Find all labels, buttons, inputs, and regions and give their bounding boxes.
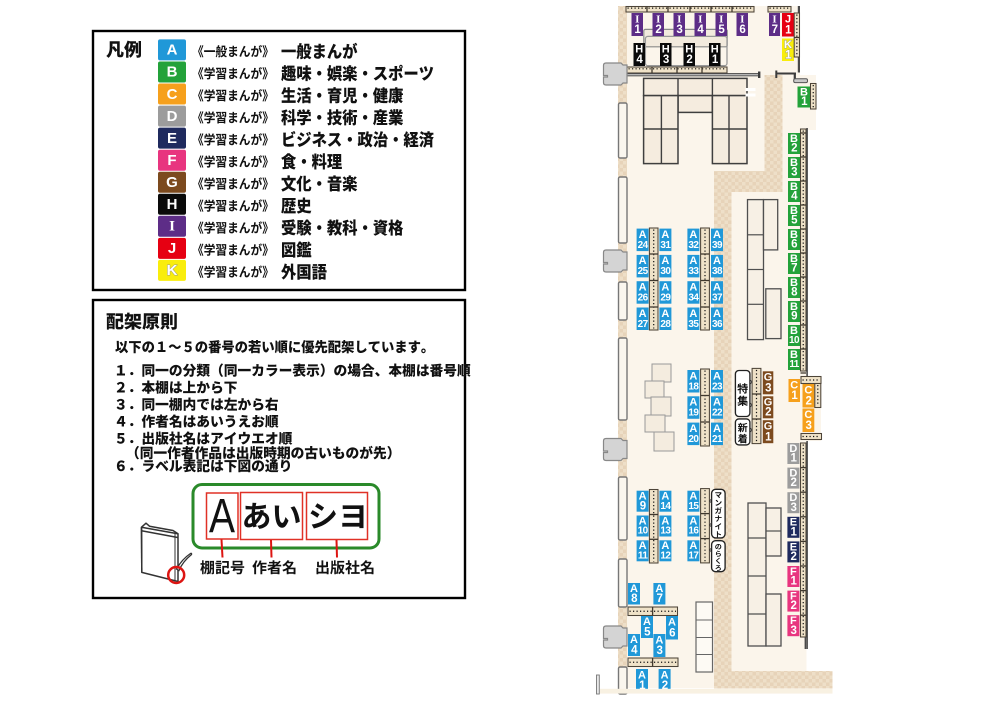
svg-text:9: 9 [640,500,646,512]
svg-text:E: E [167,130,177,147]
svg-text:2: 2 [791,551,797,563]
svg-text:27: 27 [638,319,649,330]
svg-text:F: F [167,152,176,169]
svg-text:12: 12 [660,550,671,561]
svg-text:2: 2 [791,600,797,612]
svg-text:29: 29 [660,292,671,303]
svg-text:14: 14 [660,501,671,512]
svg-text:2: 2 [791,143,797,155]
svg-text:3: 3 [663,54,669,66]
svg-text:6: 6 [669,628,675,640]
svg-text:7: 7 [772,24,778,36]
svg-text:38: 38 [712,266,723,277]
svg-text:3: 3 [791,625,797,637]
svg-text:33: 33 [688,266,699,277]
svg-text:15: 15 [688,501,699,512]
svg-text:30: 30 [660,266,671,277]
svg-text:J: J [168,240,176,257]
svg-text:B: B [167,64,178,81]
svg-text:34: 34 [688,292,699,303]
svg-text:2: 2 [765,407,771,419]
svg-text:22: 22 [712,408,723,419]
svg-text:17: 17 [688,550,699,561]
svg-text:2: 2 [806,396,812,408]
svg-text:3: 3 [765,382,771,394]
svg-text:9: 9 [791,311,797,323]
svg-text:39: 39 [712,240,723,251]
svg-text:37: 37 [712,292,723,303]
svg-text:24: 24 [638,240,649,251]
svg-text:K: K [167,262,178,279]
svg-text:G: G [166,174,178,191]
svg-text:3: 3 [657,645,663,657]
svg-text:25: 25 [638,266,649,277]
svg-text:11: 11 [638,550,648,561]
svg-text:16: 16 [688,526,699,537]
svg-text:21: 21 [712,434,723,445]
svg-text:10: 10 [789,335,800,346]
svg-text:C: C [167,86,178,103]
svg-text:6: 6 [791,239,797,251]
svg-text:20: 20 [688,434,699,445]
svg-text:A: A [167,42,178,59]
svg-text:11: 11 [789,359,799,370]
svg-text:36: 36 [712,319,723,330]
svg-text:28: 28 [660,319,671,330]
svg-text:13: 13 [660,526,671,537]
svg-text:I: I [169,219,175,235]
svg-text:31: 31 [660,240,671,251]
svg-text:D: D [167,108,178,125]
svg-text:H: H [167,196,178,213]
svg-text:A: A [209,490,235,543]
svg-text:6: 6 [739,24,745,36]
svg-text:3: 3 [806,420,812,432]
svg-text:32: 32 [688,240,699,251]
svg-text:18: 18 [688,381,699,392]
svg-text:2: 2 [686,54,692,66]
svg-text:7: 7 [791,263,797,275]
svg-text:3: 3 [791,167,797,179]
svg-text:19: 19 [688,408,699,419]
svg-text:23: 23 [712,381,723,392]
svg-text:3: 3 [676,24,682,36]
svg-text:7: 7 [657,593,663,605]
svg-text:2: 2 [791,477,797,489]
svg-text:10: 10 [638,526,649,537]
svg-text:26: 26 [638,292,649,303]
svg-text:3: 3 [791,502,797,514]
svg-text:35: 35 [688,319,699,330]
svg-text:2: 2 [655,24,661,36]
